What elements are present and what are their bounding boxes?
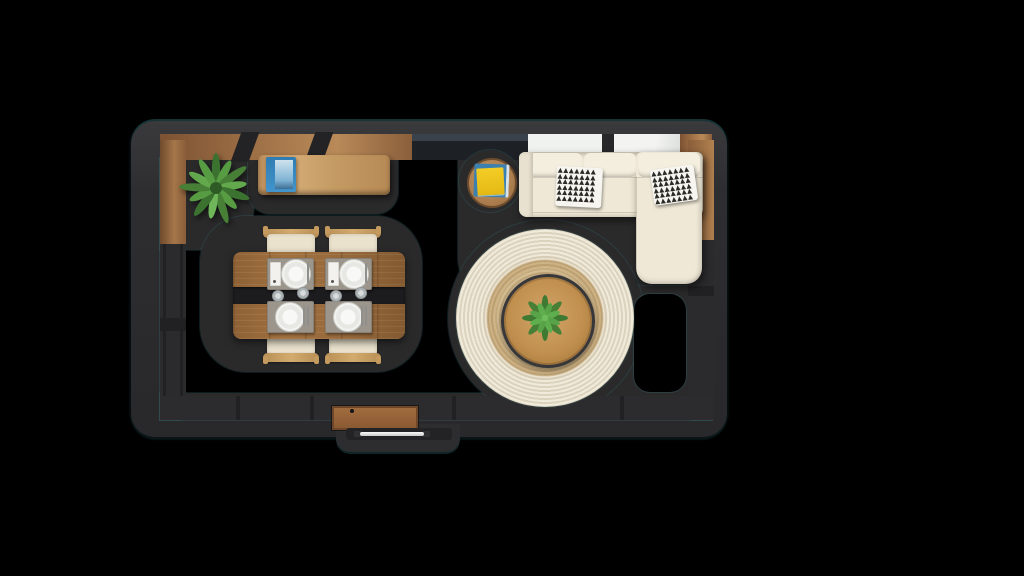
wall-face-left-frame: [160, 244, 186, 420]
chair-post: [263, 226, 268, 234]
chair-post: [314, 226, 319, 234]
chair-post: [325, 356, 330, 364]
wall-stud: [620, 396, 624, 420]
fork: [361, 306, 363, 326]
knife: [307, 306, 309, 326]
chair-post: [325, 226, 330, 234]
throw-pillow: ▲▲▲▲▲▲▲ ▲▲▲▲▲▲▲ ▲▲▲▲▲▲▲ ▲▲▲▲▲▲▲ ▲▲▲▲▲▲▲ …: [650, 164, 699, 206]
wall-stud: [163, 244, 166, 420]
wall-rail: [688, 286, 714, 296]
dining-chair-back: [263, 353, 319, 362]
floor-cutout-right: [634, 294, 686, 392]
fork: [303, 306, 305, 326]
condiment: [331, 280, 334, 283]
scene-canvas: ▲▲▲▲▲▲▲ ▲▲▲▲▲▲▲ ▲▲▲▲▲▲▲ ▲▲▲▲▲▲▲ ▲▲▲▲▲▲▲ …: [0, 0, 1024, 576]
wall-stud: [236, 396, 240, 420]
doormat: [332, 406, 418, 430]
condiment: [273, 280, 276, 283]
sofa-seam: [636, 177, 637, 283]
chair-post: [376, 356, 381, 364]
door-stop: [350, 409, 354, 413]
table-runner: [233, 287, 405, 304]
pillow-triangle-pattern: ▲▲▲▲▲▲▲ ▲▲▲▲▲▲▲ ▲▲▲▲▲▲▲ ▲▲▲▲▲▲▲ ▲▲▲▲▲▲▲ …: [555, 166, 603, 205]
sofa-armrest: [519, 152, 533, 217]
knife: [365, 306, 367, 326]
throw-pillow: ▲▲▲▲▲▲▲ ▲▲▲▲▲▲▲ ▲▲▲▲▲▲▲ ▲▲▲▲▲▲▲ ▲▲▲▲▲▲▲ …: [555, 166, 603, 208]
sofa-seam: [533, 212, 637, 213]
dinner-plate: [333, 302, 363, 332]
book-cover-art: [275, 160, 293, 189]
knife: [307, 263, 309, 283]
blue-book: [266, 157, 296, 192]
dining-chair-back: [325, 353, 381, 362]
corner-plant: [176, 148, 256, 228]
door-handle-bar: [360, 432, 424, 436]
wall-face-bottom-frame: [160, 396, 712, 420]
drinking-glass: [297, 287, 309, 299]
drinking-glass: [355, 287, 367, 299]
drinking-glass: [272, 290, 284, 302]
side-table-yellow-book: [476, 167, 504, 195]
wall-rail: [160, 318, 186, 331]
door-handle-cap: [423, 431, 430, 437]
chair-post: [263, 356, 268, 364]
drinking-glass: [330, 290, 342, 302]
wall-stud: [310, 396, 314, 420]
chair-post: [376, 226, 381, 234]
knife: [365, 263, 367, 283]
chair-post: [314, 356, 319, 364]
wall-stud: [452, 396, 456, 420]
dinner-plate: [275, 302, 305, 332]
wall-stud: [180, 244, 183, 420]
succulent-plant: [521, 294, 569, 342]
pillow-triangle-pattern: ▲▲▲▲▲▲▲ ▲▲▲▲▲▲▲ ▲▲▲▲▲▲▲ ▲▲▲▲▲▲▲ ▲▲▲▲▲▲▲ …: [650, 164, 699, 206]
